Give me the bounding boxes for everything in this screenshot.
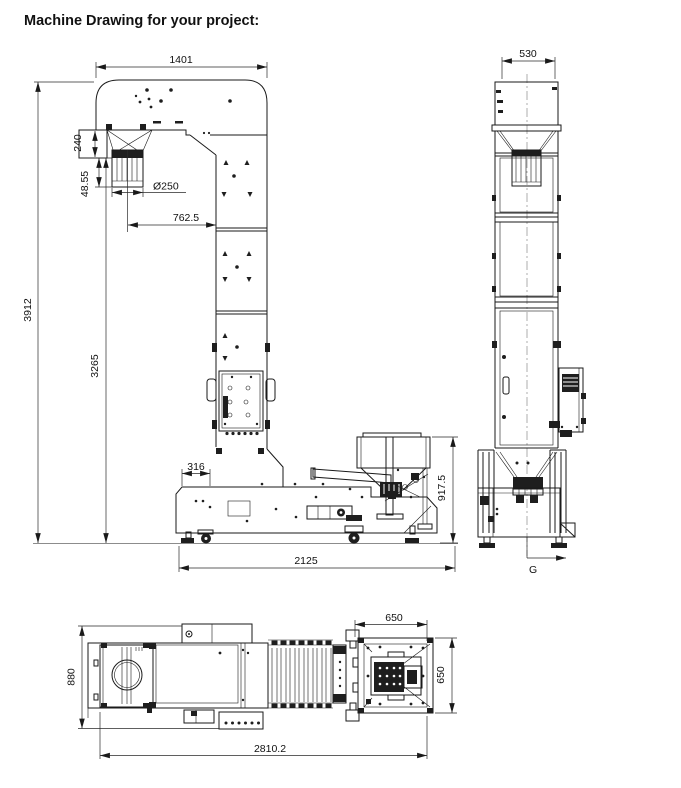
control-box bbox=[559, 368, 586, 437]
dim-overall-length: 2810.2 bbox=[254, 743, 286, 755]
dim-body-width: 880 bbox=[66, 668, 78, 686]
dim-column-width: 530 bbox=[519, 48, 537, 60]
top-body bbox=[88, 624, 268, 718]
dim-discharge-box-width: 650 bbox=[385, 612, 403, 624]
dim-outlet-diameter: Ø250 bbox=[153, 181, 179, 193]
front-view: 1401 3912 3265 240 48.55 Ø250 762.5 bbox=[22, 54, 458, 572]
elevator-column bbox=[212, 135, 270, 454]
dim-hopper-box-height: 240 bbox=[72, 134, 84, 152]
dim-head-width: 1401 bbox=[169, 54, 193, 66]
side-column bbox=[492, 131, 561, 448]
dim-base-left-offset: 316 bbox=[187, 461, 205, 473]
top-discharge-section bbox=[353, 638, 433, 713]
dim-column-height: 3265 bbox=[89, 354, 101, 378]
dim-outlet-to-column: 762.5 bbox=[173, 212, 199, 224]
infeed-hopper bbox=[311, 433, 432, 529]
top-view: 650 650 880 2810.2 bbox=[66, 612, 458, 759]
head-section bbox=[96, 80, 267, 155]
dim-infeed-height: 917.5 bbox=[436, 475, 448, 501]
gravity-marker-label: G bbox=[529, 564, 537, 576]
top-accessory-boxes bbox=[147, 708, 263, 729]
machine-drawing: 1401 3912 3265 240 48.55 Ø250 762.5 bbox=[0, 0, 681, 788]
top-rollers bbox=[268, 630, 359, 721]
side-view: 530 G bbox=[478, 48, 586, 576]
side-head bbox=[492, 82, 561, 186]
drawing-canvas: Machine Drawing for your project: bbox=[0, 0, 681, 788]
dim-outlet-neck-height: 48.55 bbox=[79, 171, 91, 197]
inspection-door bbox=[207, 371, 275, 435]
side-boot bbox=[478, 448, 575, 548]
dim-overall-height: 3912 bbox=[22, 298, 34, 322]
dim-discharge-box-depth: 650 bbox=[435, 666, 447, 684]
dim-base-length: 2125 bbox=[294, 555, 318, 567]
